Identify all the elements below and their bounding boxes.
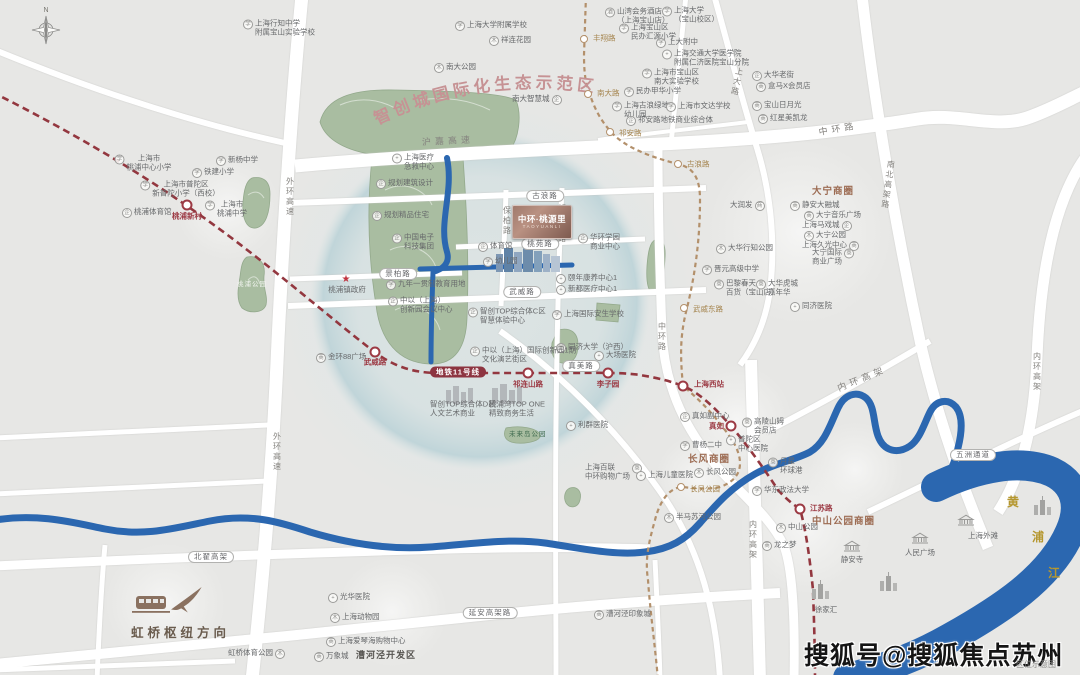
metro-station-label: 江苏路 <box>810 503 833 514</box>
hosp-icon: + <box>636 471 646 481</box>
shop-icon: 商 <box>849 241 859 251</box>
park-icon: 木 <box>330 613 340 623</box>
map-label: 江 <box>1048 569 1060 578</box>
shop-icon: 商 <box>316 353 326 363</box>
map-label: 内环高架 <box>836 365 887 392</box>
biz-icon: 企 <box>626 116 636 126</box>
park-icon: 木 <box>716 244 726 254</box>
map-label: 企大华老街 <box>752 71 794 81</box>
map-label: 木大宁公园 <box>804 231 846 241</box>
metro-station-label: 真如 <box>709 421 724 432</box>
map-label: 木中山公园 <box>776 523 818 533</box>
map-label: 人民广场 <box>905 549 935 558</box>
school-icon: 学 <box>680 441 690 451</box>
biz-icon: 企 <box>468 308 478 318</box>
metro-station-icon <box>523 368 534 379</box>
map-label: 延安高架路 <box>463 607 518 619</box>
map-label: 学上海行知中学 附属宝山实验学校 <box>243 20 315 37</box>
map-label: 外环高速 <box>286 177 295 217</box>
map-label: 商红星美凯龙 <box>758 114 808 124</box>
metro-station-label: 丰翔路 <box>593 33 616 44</box>
metro-station-icon <box>603 368 614 379</box>
map-label: +上海儿童医院 <box>636 471 693 481</box>
hosp-icon: + <box>556 285 566 295</box>
map-label: 商巴黎春天 百货（宝山店） <box>714 280 779 297</box>
map-label: 静安寺 <box>841 556 864 565</box>
school-icon: 学 <box>115 155 125 165</box>
map-label: 五洲通道 <box>950 449 996 461</box>
shop-icon: 商 <box>314 652 324 662</box>
biz-icon: 企 <box>478 242 488 252</box>
map-label: 学上海市文达学校 <box>666 102 731 112</box>
map-label: 木大华行知公园 <box>716 244 773 254</box>
biz-icon: 企 <box>122 208 132 218</box>
hosp-icon: + <box>328 593 338 603</box>
shop-icon: 商 <box>714 280 724 290</box>
biz-icon: 企 <box>388 297 398 307</box>
map-label: 企智创TOP综合体C区 智慧体验中心 <box>468 308 546 325</box>
map-label: 上大路 <box>729 66 744 97</box>
map-label: 学民办甲华小学 <box>624 87 681 97</box>
map-label: 景柏路 <box>379 268 417 280</box>
park-icon: 木 <box>694 468 704 478</box>
project-pinyin: TAOYUANLI <box>523 224 562 230</box>
metro-station-label: 祁安路 <box>619 128 642 139</box>
school-icon: 学 <box>386 280 396 290</box>
map-label: 商漕河泾印象城 <box>594 610 651 620</box>
map-label: 上海百联 中环购物广场商 <box>585 464 642 481</box>
map-label: 商大宁音乐广场 <box>804 211 861 221</box>
map-label: 学华东政法大学 <box>752 486 809 496</box>
shop-icon: 商 <box>804 211 814 221</box>
school-icon: 学 <box>205 201 215 211</box>
biz-icon: 企 <box>376 179 386 189</box>
map-label: 企桃浦体育馆 <box>122 208 172 218</box>
map-label: 学上海宝山区 民办汇源小学 <box>619 24 676 41</box>
map-label: 学上海国际安生学校 <box>552 310 624 320</box>
project-marker: 中环·桃源里 TAOYUANLI <box>512 205 572 239</box>
biz-icon: 企 <box>578 234 588 244</box>
map-label: 商金环88广场 <box>316 353 366 363</box>
map-label: +利群医院 <box>566 421 608 431</box>
metro-station-label: 长风公园 <box>690 484 720 495</box>
map-label: +颐年康养中心1 <box>556 274 617 284</box>
map-label: 学铁建小学 <box>192 168 234 178</box>
map-label: 商月星 环球港 <box>768 458 803 475</box>
hotel-icon: 酒 <box>605 8 615 18</box>
map-label: 上海马戏城企 <box>802 221 852 231</box>
metro-station-label: 上海西站 <box>694 379 724 390</box>
map-label: 智创TOP综合体D区 人文艺术商业 <box>430 401 496 418</box>
hosp-icon: + <box>556 274 566 284</box>
school-icon: 学 <box>483 257 493 267</box>
school-icon: 学 <box>702 265 712 275</box>
shop-icon: 商 <box>752 101 762 111</box>
shop-icon: 商 <box>326 637 336 647</box>
shop-icon: 商 <box>632 464 642 474</box>
map-label: 木上海动物园 <box>330 613 380 623</box>
metro-station-icon <box>606 128 614 136</box>
school-icon: 学 <box>662 7 672 17</box>
map-label: 古浪路 <box>526 190 564 202</box>
map-label: 学上海古浪绿地 幼儿园 <box>612 102 669 119</box>
map-label: 内环高架 <box>1033 352 1042 392</box>
school-icon: 学 <box>752 486 762 496</box>
map-label: 大宁国际 商业广场商 <box>812 249 854 266</box>
map-label: 学上海大学附属学校 <box>455 21 527 31</box>
map-label: 学晋元高级中学 <box>702 265 759 275</box>
shop-icon: 商 <box>756 280 766 290</box>
map-label: 学上海市 桃浦中学 <box>205 201 247 218</box>
metro-station-label: 李子园 <box>597 379 620 390</box>
shop-icon: 商 <box>768 458 778 468</box>
map-label: 商上海爱琴海购物中心 <box>326 637 406 647</box>
map-label: 南北高架路 <box>880 160 896 211</box>
metro-station-label: 南大路 <box>597 88 620 99</box>
map-label: 学曹杨二中 <box>680 441 722 451</box>
map-label: 保柏路 <box>503 206 512 236</box>
map-label: 中环路 <box>818 121 858 136</box>
map-label: 企规划建筑设计 <box>376 179 433 189</box>
shop-icon: 商 <box>756 82 766 92</box>
map-label: +同济医院 <box>790 302 832 312</box>
map-label: +大场医院 <box>594 351 636 361</box>
map-label: 酒山湾会务酒店 （上海宝山店） <box>605 8 670 25</box>
map-note: 区位示意图 <box>1016 659 1056 670</box>
map-label: 北翟高架 <box>188 551 234 563</box>
biz-icon: 企 <box>372 211 382 221</box>
map-labels-layer: N学上海行知中学 附属宝山实验学校学上海市 桃浦中心小学学新杨中学学铁建小学学上… <box>0 0 1080 675</box>
school-icon: 学 <box>243 20 253 30</box>
metro-station-icon <box>580 35 588 43</box>
map-label: 黄 <box>1007 498 1019 507</box>
map-label: 浦 <box>1032 533 1044 542</box>
map-label: 木南大公园 <box>434 63 476 73</box>
hosp-icon: + <box>726 436 736 446</box>
map-label: 学新杨中学 <box>216 156 258 166</box>
biz-icon: 企 <box>752 71 762 81</box>
hosp-icon: + <box>594 351 604 361</box>
map-label: 桃浦湾TOP ONE 精致商务生活 <box>489 401 545 418</box>
map-label: 木祥连花园 <box>489 36 531 46</box>
map-label: 南大智慧城企 <box>512 95 562 105</box>
map-label: 企中以（上海）国际创新园1期 文化演艺街区 <box>470 347 576 364</box>
map-label: 地铁11号线 <box>430 367 486 378</box>
map-label: 学上海大学 （宝山校区） <box>662 7 719 24</box>
map-label: 商大华虎城 嘉年华 <box>756 280 798 297</box>
map-label: 中山公园商圈 <box>812 518 875 527</box>
school-icon: 学 <box>656 38 666 48</box>
map-label: 大宁商圈 <box>812 188 854 197</box>
map-label: 商宝山日月光 <box>752 101 802 111</box>
map-label: 企中国电子 科技集团 <box>392 234 434 251</box>
map-label: 未来岛公园 <box>509 431 547 440</box>
park-icon: 木 <box>434 63 444 73</box>
park-icon: 木 <box>776 523 786 533</box>
hosp-icon: + <box>790 302 800 312</box>
park-icon: 木 <box>489 36 499 46</box>
map-label: 企祁安路地铁商业综合体 <box>626 116 713 126</box>
metro-station-icon <box>795 504 806 515</box>
metro-station-icon <box>678 381 689 392</box>
map-label: 商盒马X会员店 <box>756 82 811 92</box>
map-label: 学上海市普陀区 新普陀小学（西校） <box>140 181 220 198</box>
map-label: 企华环学园 商业中心 <box>578 234 620 251</box>
metro-station-label: 武威东路 <box>693 304 723 315</box>
map-label: 虹桥体育公园木 <box>228 649 285 659</box>
map-label: 企规划精品住宅 <box>372 211 429 221</box>
shop-icon: 商 <box>790 201 800 211</box>
hongqiao-hub-label: 虹桥枢纽方向 <box>131 622 230 641</box>
map-label: 长风商圈 <box>688 456 730 465</box>
hosp-icon: + <box>566 421 576 431</box>
map-label: 木长风公园 <box>694 468 736 478</box>
school-icon: 学 <box>552 310 562 320</box>
map-label: 真美路 <box>562 360 600 372</box>
map-label: 商静安大融城 <box>790 201 840 211</box>
shop-icon: 商 <box>844 249 854 259</box>
school-icon: 学 <box>612 102 622 112</box>
map-label: 内环高架 <box>749 520 758 560</box>
map-label: 桃浦公园 <box>237 281 267 290</box>
map-label: 企中以（上海） 创新园会议中心 <box>388 297 453 314</box>
shop-icon: 商 <box>742 418 752 428</box>
school-icon: 学 <box>556 343 566 353</box>
metro-station-icon <box>584 90 592 98</box>
map-label: 学上大附中 <box>656 38 698 48</box>
metro-station-icon <box>674 160 682 168</box>
map-label: +上海医疗 急救中心 <box>392 154 434 171</box>
metro-station-icon <box>726 421 737 432</box>
school-icon: 学 <box>455 21 465 31</box>
map-label: 武威路 <box>503 286 541 298</box>
metro-station-icon <box>182 200 193 211</box>
school-icon: 学 <box>624 87 634 97</box>
map-label: 商龙之梦 <box>762 541 797 551</box>
metro-station-label: 武威路 <box>364 357 387 368</box>
map-label: 上海久光中心商 <box>802 241 859 251</box>
map-label: 沪嘉高速 <box>422 135 474 146</box>
park-icon: 木 <box>804 231 814 241</box>
map-label: 学九年一贯制教育用地 <box>386 280 466 290</box>
map-label: 徐家汇 <box>815 606 838 615</box>
school-icon: 学 <box>666 102 676 112</box>
location-map: 智创城国际化生态示范区 N学上海行知中学 附属宝山实验学校学上海市 桃浦中心小学… <box>0 0 1080 675</box>
project-name: 中环·桃源里 <box>518 214 566 224</box>
metro-station-label: 桃浦新村 <box>172 211 202 222</box>
map-label: +普陀区 中心医院 <box>726 436 768 453</box>
metro-station-icon <box>677 483 685 491</box>
map-label: 大润发商 <box>730 201 765 211</box>
biz-icon: 企 <box>470 347 480 357</box>
school-icon: 学 <box>619 24 629 34</box>
biz-icon: 企 <box>680 412 690 422</box>
map-label: N <box>43 7 48 16</box>
shop-icon: 商 <box>755 201 765 211</box>
shop-icon: 商 <box>594 610 604 620</box>
school-icon: 学 <box>216 156 226 166</box>
biz-icon: 企 <box>392 234 402 244</box>
school-icon: 学 <box>192 168 202 178</box>
map-label: +新都医疗中心1 <box>556 285 617 295</box>
map-label: 木半马苏河公园 <box>664 513 721 523</box>
map-label: 桃浦镇政府 <box>328 286 366 295</box>
map-label: 学上海市 桃浦中心小学 <box>115 155 172 172</box>
map-label: 商万象城 <box>314 652 349 662</box>
school-icon: 学 <box>140 181 150 191</box>
map-label: 学同济大学（沪西） <box>556 343 628 353</box>
school-icon: 学 <box>642 69 652 79</box>
map-label: 学幼儿园 <box>483 257 518 267</box>
map-label: 上海外滩 <box>968 532 998 541</box>
map-label: 学上海市宝山区 南大实验学校 <box>642 69 699 86</box>
map-label: 桃苑路 <box>521 238 559 250</box>
metro-station-label: 古浪路 <box>687 159 710 170</box>
park-icon: 木 <box>664 513 674 523</box>
metro-station-label: 祁连山路 <box>513 379 543 390</box>
map-label: 外环高速 <box>273 432 282 472</box>
biz-icon: 企 <box>552 95 562 105</box>
map-label: ★ <box>342 275 351 285</box>
metro-station-icon <box>680 304 688 312</box>
map-label: 企体育馆 <box>478 242 513 252</box>
shop-icon: 商 <box>758 114 768 124</box>
map-label: 漕河泾开发区 <box>356 651 416 660</box>
map-label: 商高陵山姆 会员店 <box>742 418 784 435</box>
map-label: +光华医院 <box>328 593 370 603</box>
park-icon: 木 <box>275 649 285 659</box>
map-label: +上海交通大学医学院 附属仁济医院宝山分院 <box>662 50 749 67</box>
shop-icon: 商 <box>762 541 772 551</box>
hosp-icon: + <box>392 154 402 164</box>
hosp-icon: + <box>662 50 672 60</box>
biz-icon: 企 <box>842 221 852 231</box>
map-label: 中环路 <box>658 322 667 352</box>
